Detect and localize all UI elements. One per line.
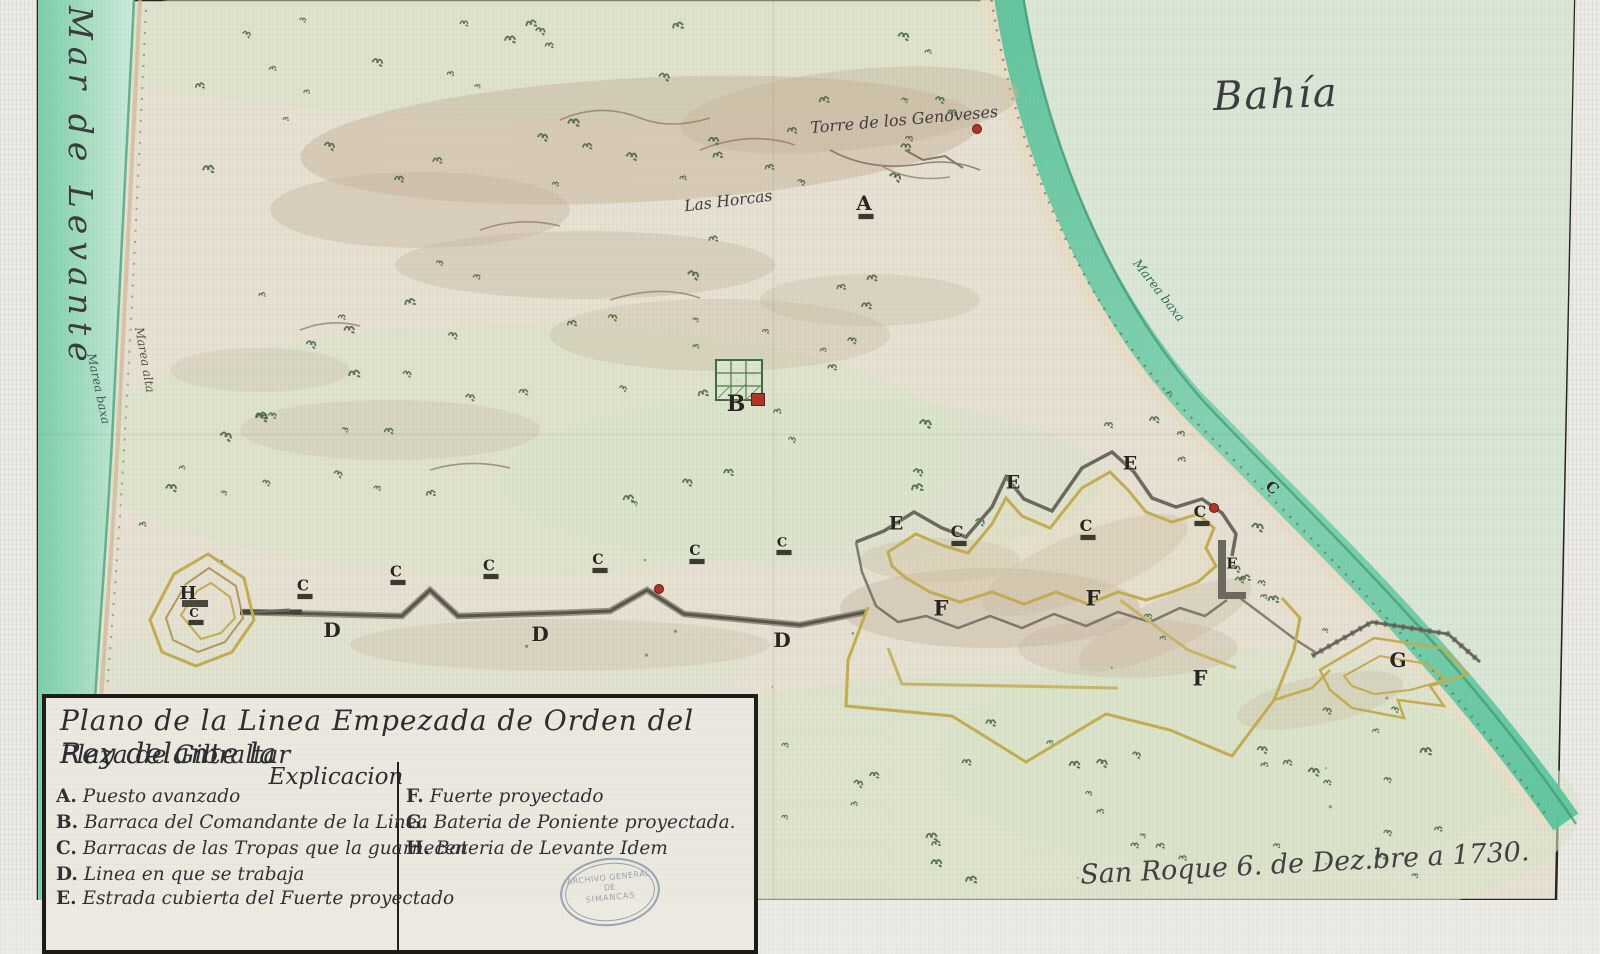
barrack-symbol	[593, 568, 608, 573]
stamp-line3: SIMANCAS	[562, 888, 658, 907]
covered-way-stub	[1218, 592, 1246, 599]
stamp-line2: DE	[561, 878, 657, 897]
barrack-symbol	[690, 559, 705, 564]
legend-entry-e: E.Estrada cubierta del Fuerte proyectado	[56, 888, 454, 912]
map-marker-c: C	[1194, 504, 1207, 520]
barrack-symbol	[859, 214, 874, 219]
legend-text: Bateria de Poniente proyectada.	[434, 812, 736, 833]
map-marker-c: C	[777, 537, 787, 550]
legend-text: Puesto avanzado	[83, 786, 240, 807]
historic-map-page: { "labels": { "sea_left": "Mar de Levant…	[0, 0, 1600, 900]
legend-text: Bateria de Levante Idem	[436, 838, 668, 859]
legend-entry-a: A.Puesto avanzado	[56, 786, 240, 810]
bay-label: Bahía	[1212, 70, 1339, 120]
barrack-symbol	[298, 594, 313, 599]
legend-key: A.	[56, 786, 77, 807]
map-marker-c: C	[951, 524, 964, 540]
legend-key: E.	[56, 888, 77, 909]
legend-text: Fuerte proyectado	[430, 786, 604, 807]
map-marker-h: H	[179, 585, 196, 603]
map-marker-c: C	[189, 607, 199, 619]
legend-key: D.	[56, 864, 78, 885]
map-marker-c: C	[297, 579, 309, 594]
barrack-symbol	[1081, 535, 1096, 540]
legend-text: Barraca del Comandante de la Linea	[84, 812, 428, 833]
map-marker-d: D	[323, 620, 340, 640]
red-dot-marker	[1209, 503, 1219, 513]
barrack-symbol	[189, 620, 204, 625]
stamp-line1: ARCHIVO GENERAL	[560, 868, 656, 887]
legend-entry-f: F.Fuerte proyectado	[406, 786, 604, 810]
legend-key: F.	[406, 786, 424, 807]
map-marker-f: F	[1193, 668, 1208, 689]
map-marker-b: B	[727, 393, 746, 415]
map-marker-c: C	[483, 559, 495, 574]
map-marker-c: C	[689, 544, 700, 558]
barrack-symbol	[391, 580, 406, 585]
legend-key: G.	[406, 812, 428, 833]
red-dot-marker	[654, 584, 664, 594]
legend-key: C.	[56, 838, 77, 859]
legend-key: B.	[56, 812, 78, 833]
legend-entry-g: G.Bateria de Poniente proyectada.	[406, 812, 736, 836]
barrack-symbol	[777, 550, 792, 555]
map-marker-f: F	[934, 598, 949, 619]
map-marker-a: A	[856, 193, 872, 213]
map-marker-e: E	[1006, 474, 1020, 493]
map-marker-e: E	[1226, 557, 1237, 572]
legend-entry-b: B.Barraca del Comandante de la Linea	[56, 812, 428, 836]
map-marker-g: G	[1389, 650, 1406, 670]
map-marker-d: D	[773, 630, 790, 650]
legend-key: H.	[406, 838, 430, 859]
map-marker-d: D	[531, 624, 548, 644]
barrack-symbol	[484, 574, 499, 579]
legend-entry-d: D.Linea en que se trabaja	[56, 864, 304, 888]
map-marker-f: F	[1086, 588, 1101, 609]
barrack-symbol	[1195, 521, 1210, 526]
red-square-marker	[751, 393, 765, 406]
map-marker-c: C	[592, 553, 603, 567]
map-marker-c: C	[1080, 518, 1093, 534]
covered-way-bar	[1218, 540, 1226, 598]
map-marker-e: E	[889, 515, 903, 534]
map-marker-e: E	[1123, 455, 1137, 474]
legend-text: Estrada cubierta del Fuerte proyectado	[83, 888, 455, 909]
legend-text: Linea en que se trabaja	[84, 864, 305, 885]
barrack-symbol	[952, 541, 967, 546]
red-dot-marker	[972, 124, 982, 134]
sea-label: Mar de Levante	[61, 6, 100, 316]
legend-cartouche: Plano de la Linea Empezada de Orden del …	[42, 694, 758, 954]
map-marker-c: C	[390, 565, 402, 580]
